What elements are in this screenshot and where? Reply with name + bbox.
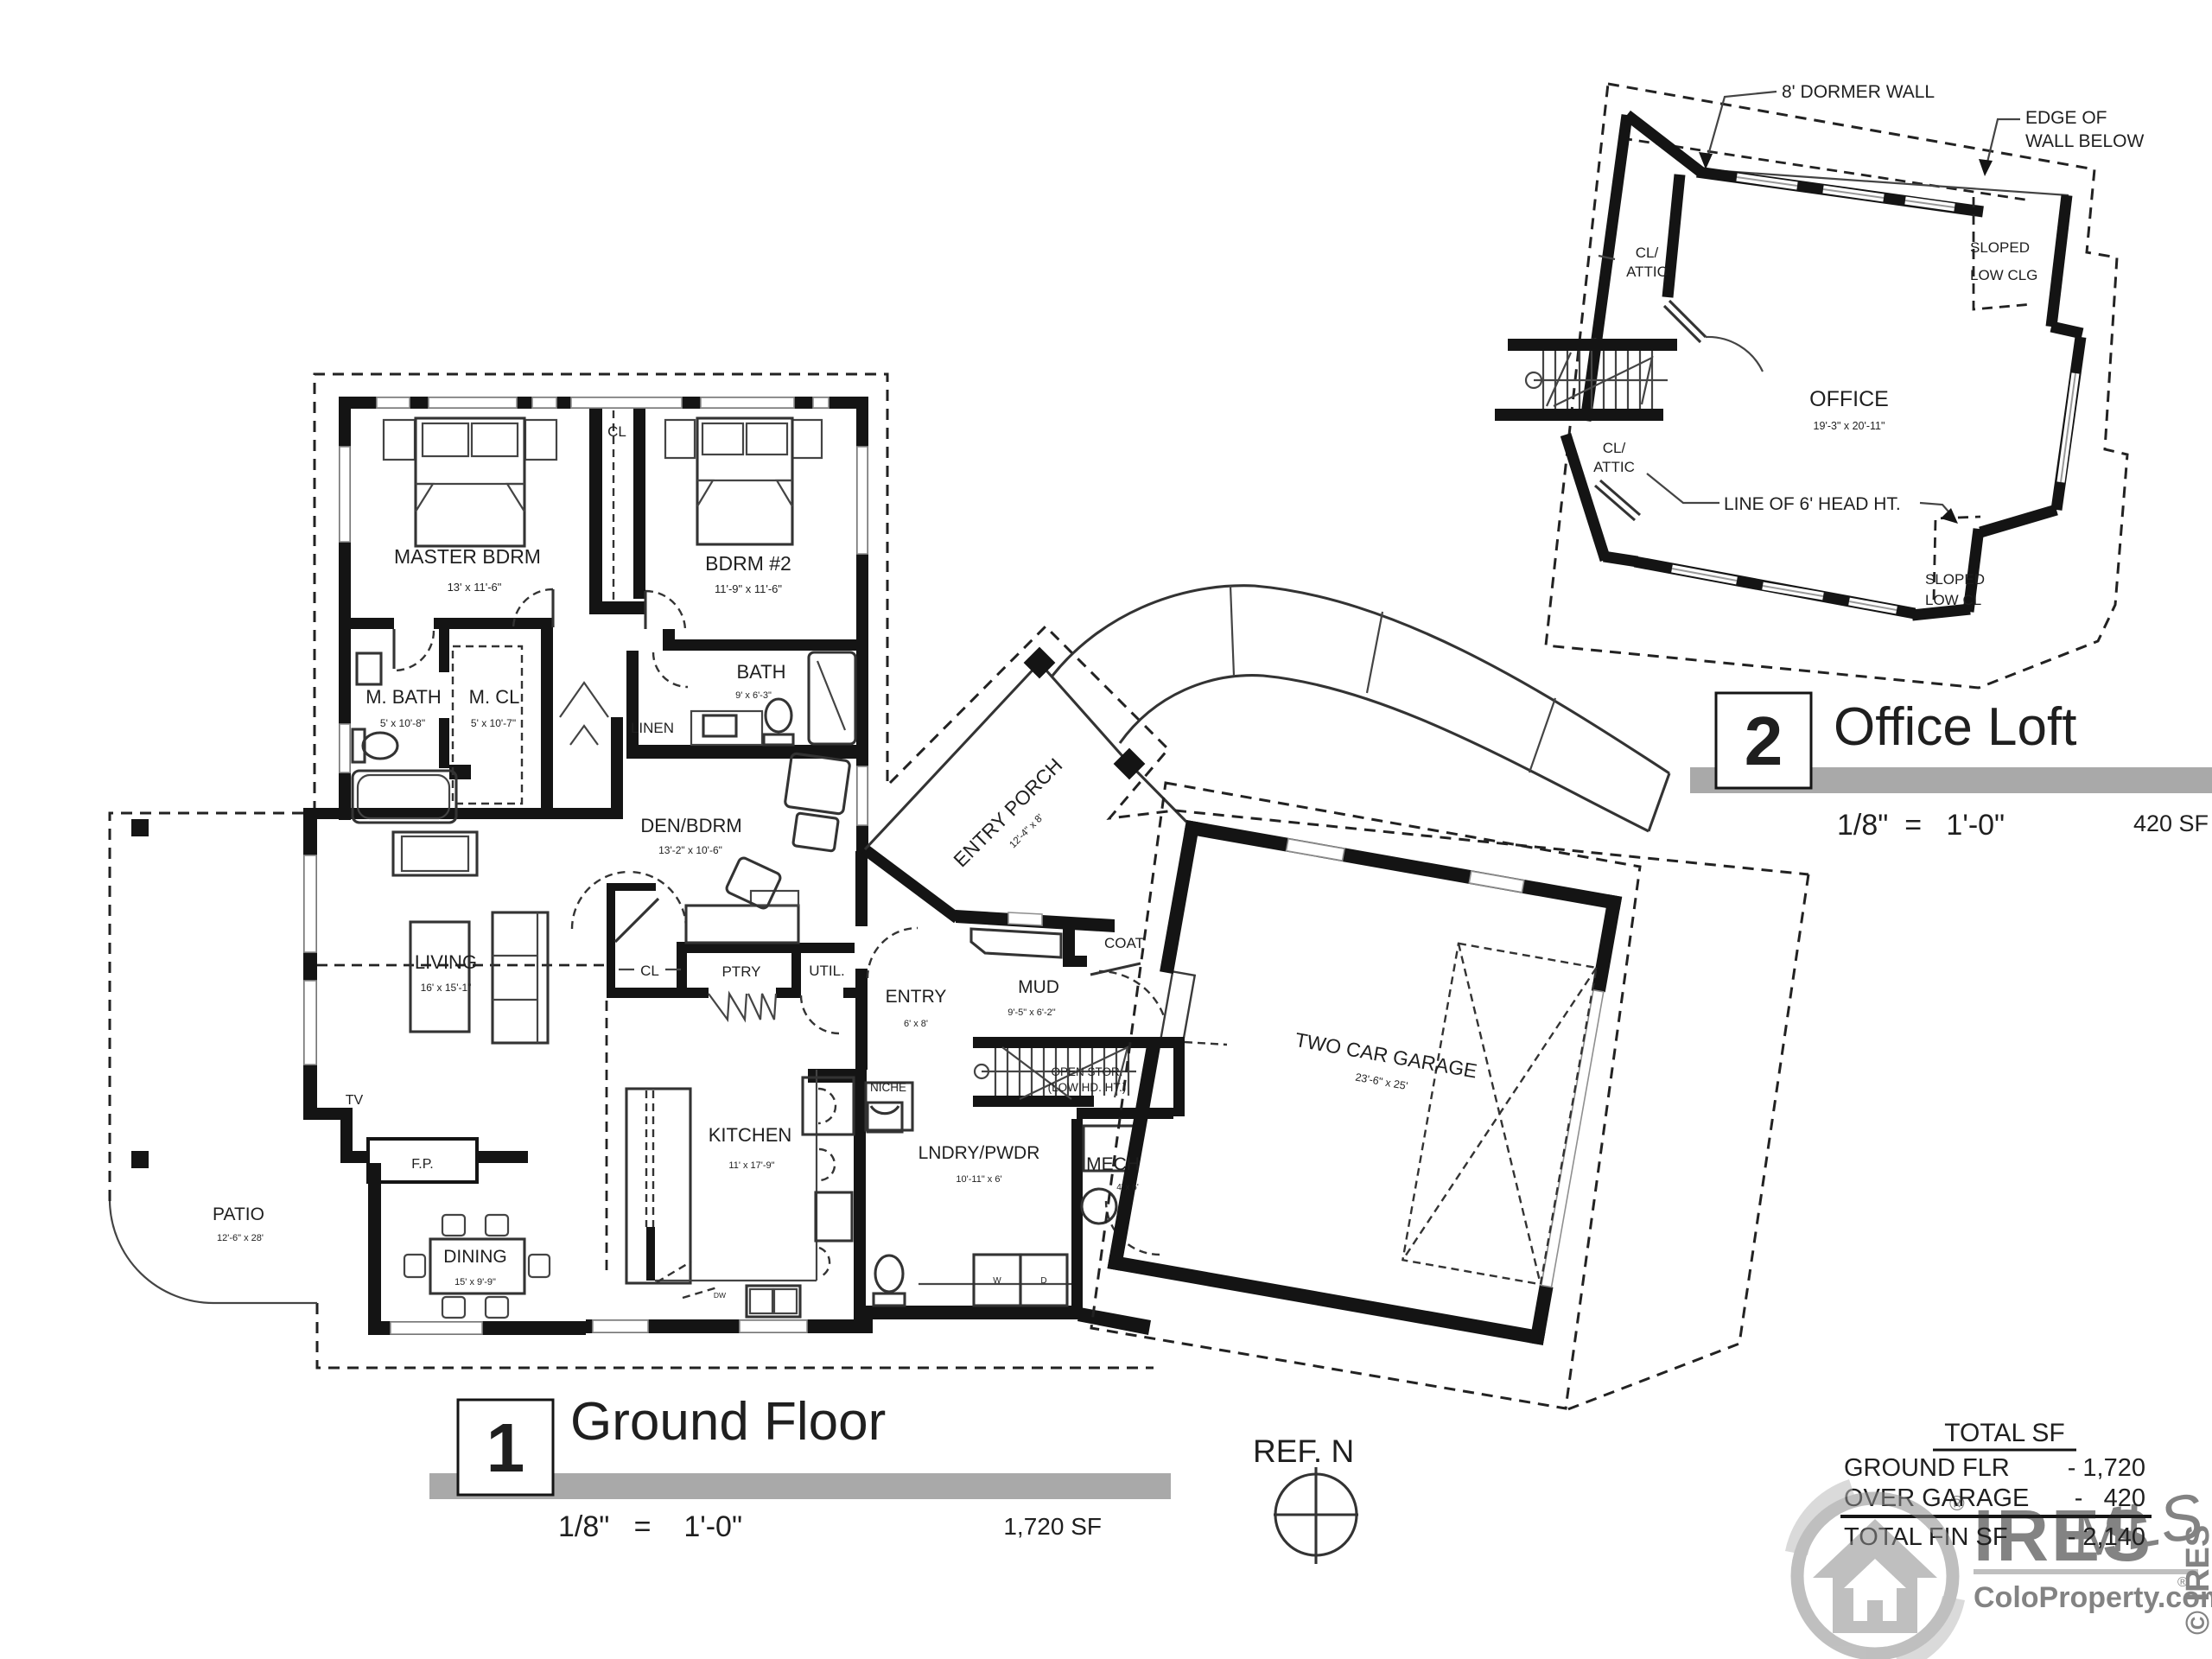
svg-text:M. BATH: M. BATH: [365, 686, 442, 708]
svg-text:DW: DW: [714, 1291, 726, 1300]
svg-text:®: ®: [1949, 1492, 1965, 1516]
svg-text:EDGE OF: EDGE OF: [2025, 108, 2107, 128]
svg-text:4' x 6': 4' x 6': [1116, 1183, 1139, 1192]
svg-text:5' x 10'-7": 5' x 10'-7": [471, 717, 516, 729]
svg-text:8' DORMER WALL: 8' DORMER WALL: [1782, 82, 1935, 102]
svg-text:TOTAL SF: TOTAL SF: [1944, 1419, 2064, 1447]
svg-text:CL/: CL/: [1636, 245, 1659, 261]
svg-text:1/8" = 1'-0": 1/8" = 1'-0": [558, 1510, 742, 1543]
svg-text:SLOPED: SLOPED: [1970, 239, 2030, 256]
svg-text:16' x 15'-1": 16' x 15'-1": [421, 982, 472, 994]
svg-text:BATH: BATH: [736, 661, 785, 683]
svg-text:COAT: COAT: [1104, 935, 1144, 951]
svg-text:F.P.: F.P.: [411, 1157, 434, 1172]
svg-text:LOW CLG: LOW CLG: [1970, 267, 2037, 283]
svg-text:ATTIC: ATTIC: [1626, 264, 1668, 280]
svg-text:CL: CL: [640, 963, 659, 979]
svg-text:D: D: [1040, 1276, 1046, 1286]
svg-text:ENTRY: ENTRY: [886, 987, 947, 1007]
svg-text:LINEN: LINEN: [631, 720, 674, 736]
svg-text:LIVING: LIVING: [415, 951, 477, 973]
svg-text:15' x 9'-9": 15' x 9'-9": [454, 1277, 496, 1287]
svg-text:9' x 6'-3": 9' x 6'-3": [735, 690, 772, 701]
svg-text:OPEN STOR.: OPEN STOR.: [1051, 1065, 1122, 1078]
svg-text:1/8" = 1'-0": 1/8" = 1'-0": [1837, 809, 2005, 842]
svg-text:CL/: CL/: [1603, 440, 1626, 456]
svg-text:NICHE: NICHE: [870, 1081, 906, 1094]
svg-text:12'-6" x 28': 12'-6" x 28': [217, 1233, 264, 1243]
svg-text:19'-3" x 20'-11": 19'-3" x 20'-11": [1814, 420, 1885, 432]
svg-text:REF. N: REF. N: [1253, 1433, 1354, 1469]
svg-text:LINE OF 6' HEAD HT.: LINE OF 6' HEAD HT.: [1724, 494, 1901, 514]
svg-text:11'-9" x 11'-6": 11'-9" x 11'-6": [715, 582, 782, 595]
svg-text:5' x 10'-8": 5' x 10'-8": [380, 717, 425, 729]
svg-text:(LOW HD. HT.): (LOW HD. HT.): [1048, 1081, 1127, 1094]
svg-text:GROUND FLR: GROUND FLR: [1844, 1454, 2010, 1482]
svg-text:1: 1: [486, 1409, 525, 1486]
svg-text:Ground Floor: Ground Floor: [570, 1392, 886, 1452]
svg-text:OFFICE: OFFICE: [1809, 387, 1889, 411]
svg-text:UTIL.: UTIL.: [809, 963, 845, 979]
svg-text:1,720 SF: 1,720 SF: [1003, 1513, 1102, 1540]
svg-text:11' x 17'-9": 11' x 17'-9": [728, 1160, 774, 1171]
svg-text:PTRY: PTRY: [721, 963, 760, 980]
svg-text:ColoProperty.com: ColoProperty.com: [1974, 1581, 2212, 1614]
svg-text:2: 2: [1745, 702, 1783, 779]
svg-text:- 1,720: - 1,720: [2068, 1454, 2145, 1482]
svg-text:420 SF: 420 SF: [2133, 810, 2209, 836]
svg-text:WALL BELOW: WALL BELOW: [2025, 131, 2144, 151]
svg-text:MECH: MECH: [1086, 1154, 1140, 1174]
svg-text:PATIO: PATIO: [213, 1205, 264, 1224]
svg-text:13' x 11'-6": 13' x 11'-6": [448, 581, 502, 594]
svg-text:DINING: DINING: [443, 1247, 507, 1267]
svg-text:LNDRY/PWDR: LNDRY/PWDR: [918, 1143, 1040, 1163]
svg-text:BDRM #2: BDRM #2: [705, 552, 791, 575]
svg-text:CL: CL: [607, 423, 626, 440]
svg-text:MASTER BDRM: MASTER BDRM: [394, 545, 541, 568]
svg-text:KITCHEN: KITCHEN: [709, 1124, 792, 1146]
svg-text:M. CL: M. CL: [469, 686, 520, 708]
svg-text:13'-2" x 10'-6": 13'-2" x 10'-6": [658, 844, 722, 856]
svg-text:9'-5" x 6'-2": 9'-5" x 6'-2": [1007, 1007, 1056, 1018]
svg-text:MUD: MUD: [1018, 977, 1059, 997]
svg-text:10'-11" x 6': 10'-11" x 6': [956, 1174, 1001, 1185]
svg-text:Office Loft: Office Loft: [1834, 697, 2076, 757]
svg-text:W: W: [993, 1276, 1001, 1286]
svg-text:6' x 8': 6' x 8': [904, 1019, 928, 1029]
svg-text:© IRES: © IRES: [2180, 1525, 2212, 1635]
svg-text:DEN/BDRM: DEN/BDRM: [640, 815, 741, 836]
svg-text:TV: TV: [346, 1093, 364, 1108]
svg-text:ATTIC: ATTIC: [1593, 459, 1635, 475]
